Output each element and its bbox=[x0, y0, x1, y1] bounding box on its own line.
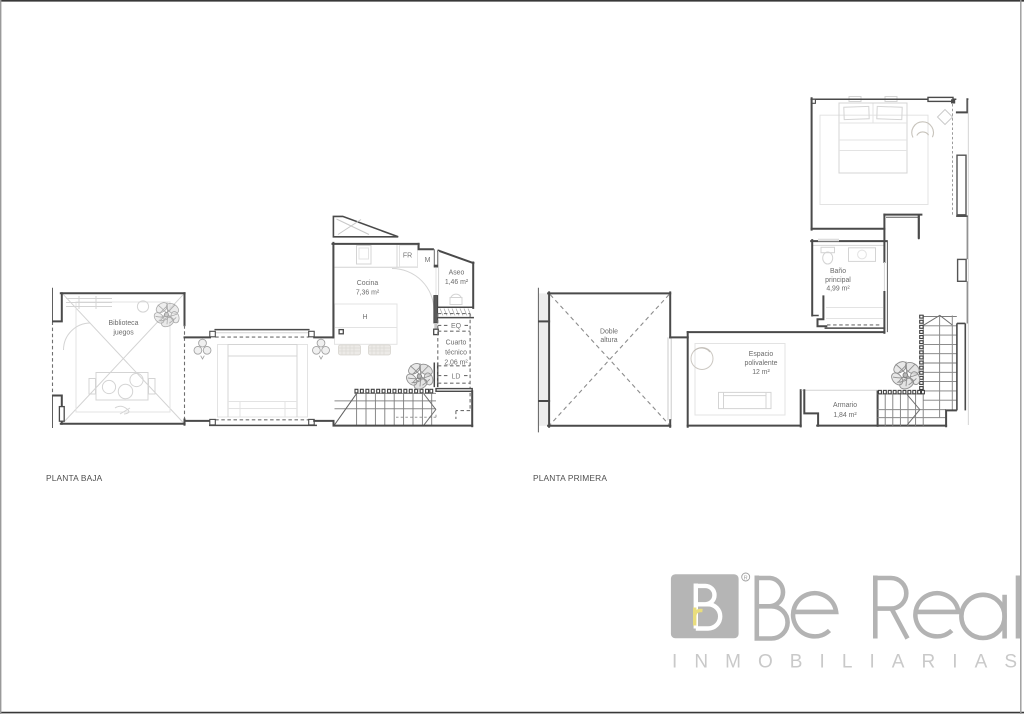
svg-text:juegos: juegos bbox=[112, 330, 134, 337]
svg-text:1,84 m²: 1,84 m² bbox=[833, 412, 857, 419]
svg-text:1,46 m²: 1,46 m² bbox=[445, 279, 469, 286]
svg-text:EQ: EQ bbox=[451, 323, 462, 330]
svg-text:Doble: Doble bbox=[600, 329, 618, 336]
svg-text:2,06 m²: 2,06 m² bbox=[444, 359, 468, 366]
svg-text:altura: altura bbox=[600, 337, 617, 344]
svg-text:Cocina: Cocina bbox=[357, 280, 379, 287]
svg-text:R: R bbox=[744, 575, 748, 581]
svg-text:Baño: Baño bbox=[830, 268, 846, 275]
svg-text:Cuarto: Cuarto bbox=[446, 339, 467, 346]
svg-text:LD: LD bbox=[452, 374, 461, 381]
svg-text:principal: principal bbox=[825, 277, 851, 284]
svg-text:PLANTA BAJA: PLANTA BAJA bbox=[46, 473, 103, 483]
svg-text:4,99 m²: 4,99 m² bbox=[826, 286, 850, 293]
svg-text:PLANTA PRIMERA: PLANTA PRIMERA bbox=[533, 473, 607, 483]
svg-text:Aseo: Aseo bbox=[449, 270, 465, 277]
svg-text:Espacio: Espacio bbox=[749, 351, 774, 358]
svg-text:7,36 m²: 7,36 m² bbox=[356, 290, 380, 297]
svg-text:Armario: Armario bbox=[833, 402, 857, 409]
svg-text:H: H bbox=[362, 314, 367, 321]
svg-text:técnico: técnico bbox=[445, 349, 467, 356]
svg-text:M: M bbox=[425, 257, 431, 264]
svg-text:Biblioteca: Biblioteca bbox=[109, 320, 139, 327]
svg-text:polivalente: polivalente bbox=[745, 360, 778, 367]
svg-text:12 m²: 12 m² bbox=[752, 369, 770, 376]
svg-text:FR: FR bbox=[403, 253, 412, 260]
